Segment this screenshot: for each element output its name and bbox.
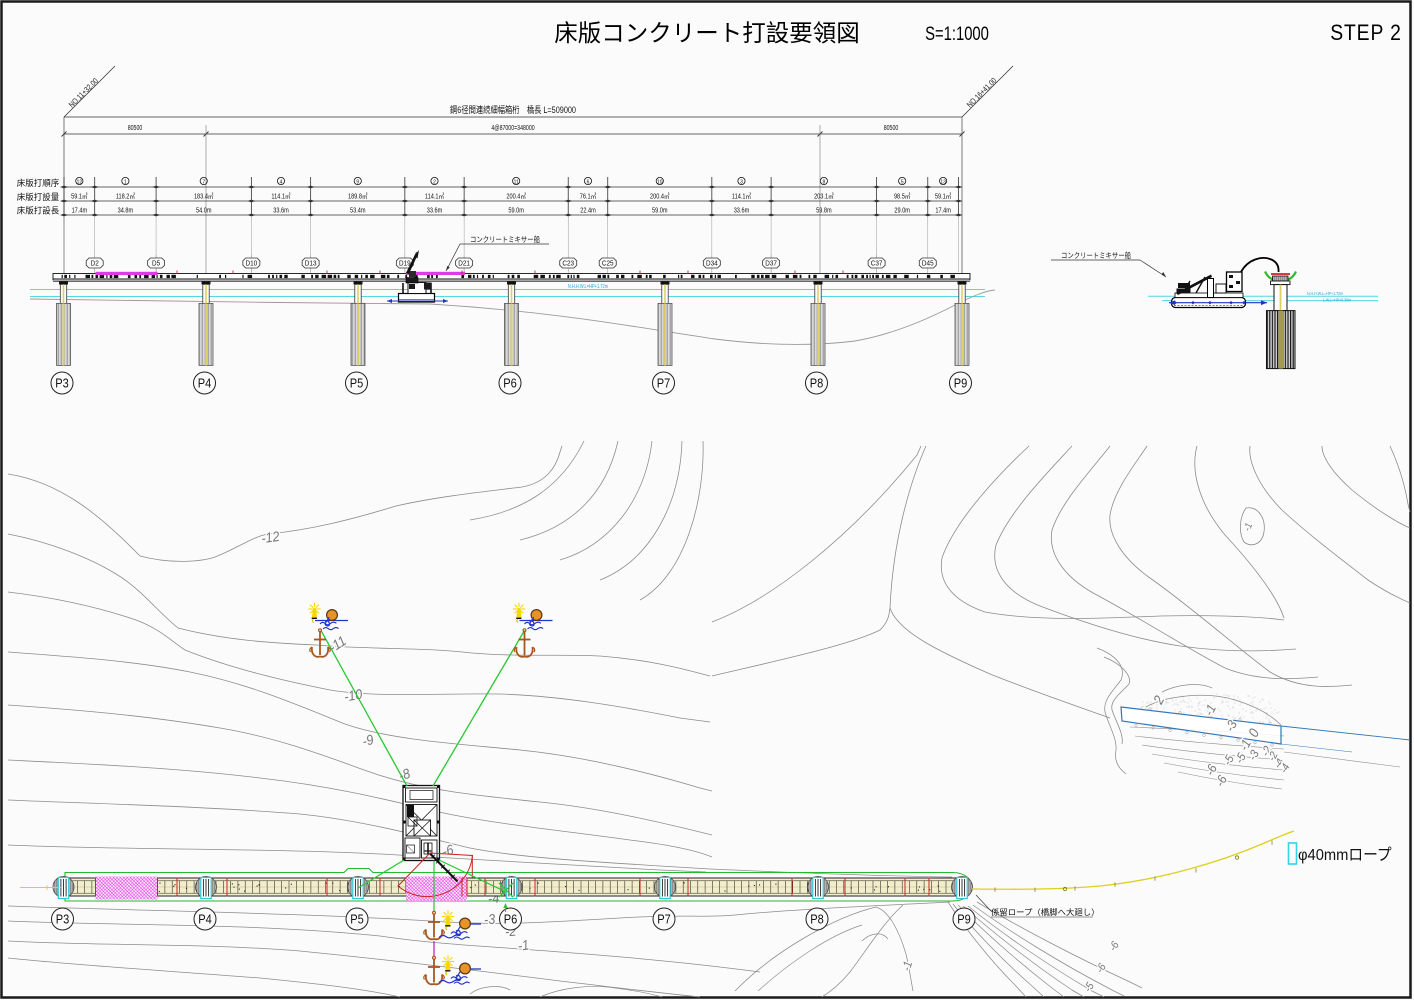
svg-text:P4: P4 [198,376,212,391]
svg-text:-12: -12 [260,528,281,546]
svg-text:189.8㎥: 189.8㎥ [348,191,368,201]
svg-text:P3: P3 [55,376,69,391]
svg-text:3: 3 [740,179,743,185]
svg-text:床版打順序: 床版打順序 [17,178,60,188]
svg-text:D5: D5 [152,260,160,268]
svg-text:N.H.H.W.L=HP+1.72m: N.H.H.W.L=HP+1.72m [568,284,608,290]
svg-text:床版打設長: 床版打設長 [17,205,60,215]
svg-text:22.4m: 22.4m [580,207,596,215]
svg-text:76.1㎥: 76.1㎥ [580,191,597,201]
svg-text:P4: P4 [198,912,212,927]
svg-text:8: 8 [822,179,825,185]
svg-text:9: 9 [356,179,359,185]
svg-text:P9: P9 [957,912,971,927]
svg-text:33.6m: 33.6m [734,207,750,215]
svg-text:1: 1 [124,179,127,185]
svg-text:114.1㎥: 114.1㎥ [732,191,752,201]
svg-text:P9: P9 [954,376,968,391]
svg-text:D34: D34 [706,260,718,268]
svg-text:59.1㎥: 59.1㎥ [935,191,952,201]
svg-text:C37: C37 [871,260,883,268]
svg-text:17.4m: 17.4m [72,207,88,215]
svg-text:D19: D19 [399,260,411,268]
svg-text:118.2㎥: 118.2㎥ [116,191,136,201]
svg-text:P6: P6 [504,912,518,927]
svg-text:98.5㎥: 98.5㎥ [894,191,911,201]
svg-text:80500: 80500 [884,124,899,132]
svg-text:C25: C25 [602,260,614,268]
svg-text:53.4m: 53.4m [350,207,366,215]
svg-text:12: 12 [77,179,83,185]
svg-text:P6: P6 [503,376,517,391]
svg-text:D10: D10 [246,260,258,268]
svg-text:D21: D21 [458,260,470,268]
svg-text:13: 13 [940,179,946,185]
svg-text:コンクリートミキサー船: コンクリートミキサー船 [470,234,540,244]
svg-text:6: 6 [587,179,590,185]
svg-text:200.4㎥: 200.4㎥ [506,191,526,201]
svg-text:φ40mmロープ: φ40mmロープ [1298,845,1392,864]
svg-text:33.6m: 33.6m [273,207,289,215]
svg-text:S=1:1000: S=1:1000 [925,23,989,44]
svg-text:STEP 2: STEP 2 [1330,21,1402,45]
svg-text:5: 5 [901,179,904,185]
svg-text:P5: P5 [350,376,364,391]
svg-text:係留ロープ（橋脚へ大廻し）: 係留ロープ（橋脚へ大廻し） [991,907,1100,917]
svg-text:P8: P8 [810,912,824,927]
svg-text:コンクリートミキサー船: コンクリートミキサー船 [1061,250,1131,260]
svg-text:P7: P7 [657,376,671,391]
svg-text:114.1㎥: 114.1㎥ [271,191,291,201]
svg-text:29.0m: 29.0m [894,207,910,215]
svg-text:200.4㎥: 200.4㎥ [650,191,670,201]
svg-text:-1: -1 [517,937,530,954]
svg-text:59.0m: 59.0m [652,207,668,215]
svg-text:鋼6径間連続細幅箱桁 橋長 L=509000: 鋼6径間連続細幅箱桁 橋長 L=509000 [450,104,576,115]
svg-text:2: 2 [433,179,436,185]
svg-text:183.4㎥: 183.4㎥ [194,191,214,201]
svg-text:114.1㎥: 114.1㎥ [425,191,445,201]
svg-text:59.8m: 59.8m [816,207,832,215]
svg-text:P3: P3 [56,912,70,927]
svg-text:D45: D45 [922,260,934,268]
svg-text:17.4m: 17.4m [935,207,951,215]
svg-text:-3: -3 [483,911,496,928]
svg-text:P5: P5 [350,912,364,927]
svg-text:P8: P8 [810,376,824,391]
svg-text:床版打設量: 床版打設量 [17,192,60,202]
svg-text:33.6m: 33.6m [427,207,443,215]
svg-text:203.1㎥: 203.1㎥ [814,191,834,201]
svg-text:N.H.H.W.L=HP+1.72m: N.H.H.W.L=HP+1.72m [1307,291,1344,297]
svg-text:34.8m: 34.8m [118,207,134,215]
svg-text:80500: 80500 [128,124,143,132]
svg-text:D13: D13 [305,260,317,268]
svg-text:D2: D2 [91,260,99,268]
svg-text:P7: P7 [657,912,671,927]
svg-text:4: 4 [280,179,283,185]
svg-text:59.0m: 59.0m [508,207,524,215]
svg-text:59.1㎥: 59.1㎥ [71,191,88,201]
svg-text:54.0m: 54.0m [196,207,212,215]
svg-text:L.W.L=HP+0.30m: L.W.L=HP+0.30m [1323,297,1352,303]
svg-text:11: 11 [514,179,519,185]
svg-text:7: 7 [202,179,205,185]
svg-text:床版コンクリート打設要領図: 床版コンクリート打設要領図 [554,20,860,46]
svg-text:10: 10 [657,179,663,185]
svg-text:4@87000=348000: 4@87000=348000 [491,124,535,132]
svg-text:C23: C23 [562,260,574,268]
svg-text:D37: D37 [765,260,777,268]
